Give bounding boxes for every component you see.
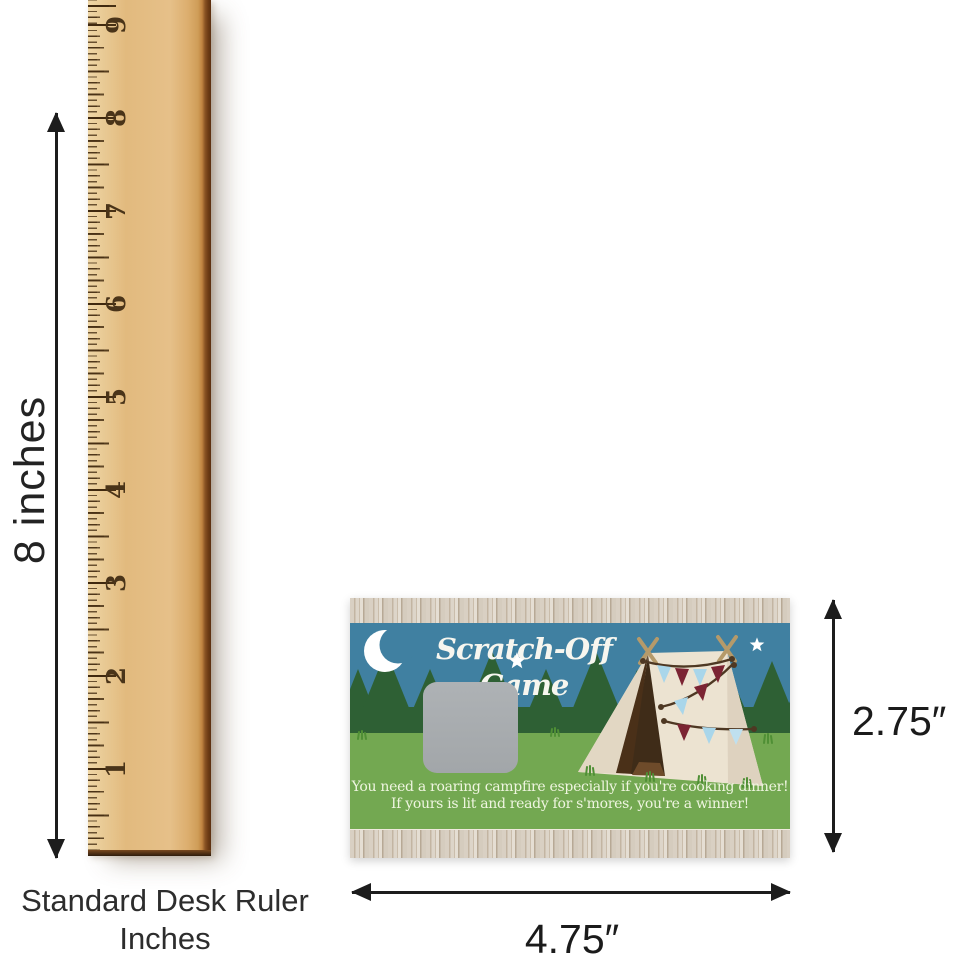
ruler-caption-line2: Inches xyxy=(0,920,330,958)
ruler-number: 4 xyxy=(102,473,132,507)
ruler-number: 9 xyxy=(102,8,132,42)
wooden-ruler: 987654321 xyxy=(88,0,211,856)
scratch-area xyxy=(423,682,518,773)
card-width-dimension-arrow xyxy=(352,891,790,894)
card-message: You need a roaring campfire especially i… xyxy=(350,779,790,813)
ruler-number: 8 xyxy=(102,101,132,135)
ruler-caption: Standard Desk Ruler Inches xyxy=(0,882,330,958)
woodgrain-border-bottom xyxy=(350,829,790,858)
card-height-dimension-arrow xyxy=(832,600,835,852)
product-size-diagram: 987654321 8 inches Standard Desk Ruler I… xyxy=(0,0,972,970)
card-message-line2: If yours is lit and ready for s'mores, y… xyxy=(350,796,790,813)
ruler-number: 6 xyxy=(102,287,132,321)
ruler-number: 5 xyxy=(102,380,132,414)
ruler-height-label: 8 inches xyxy=(5,360,55,600)
woodgrain-border-top xyxy=(350,598,790,624)
card-height-label: 2.75″ xyxy=(852,698,972,745)
ruler-number: 1 xyxy=(102,752,132,786)
camping-scene: Scratch-Off Game You need a roaring camp… xyxy=(350,623,790,830)
ruler-number: 3 xyxy=(102,566,132,600)
ruler-number: 2 xyxy=(102,659,132,693)
ruler-number: 7 xyxy=(102,194,132,228)
scratch-off-card: Scratch-Off Game You need a roaring camp… xyxy=(350,598,790,858)
ruler-height-dimension-arrow xyxy=(55,113,58,858)
card-width-label: 4.75″ xyxy=(472,916,672,963)
card-message-line1: You need a roaring campfire especially i… xyxy=(350,779,790,796)
ruler-caption-line1: Standard Desk Ruler xyxy=(0,882,330,920)
